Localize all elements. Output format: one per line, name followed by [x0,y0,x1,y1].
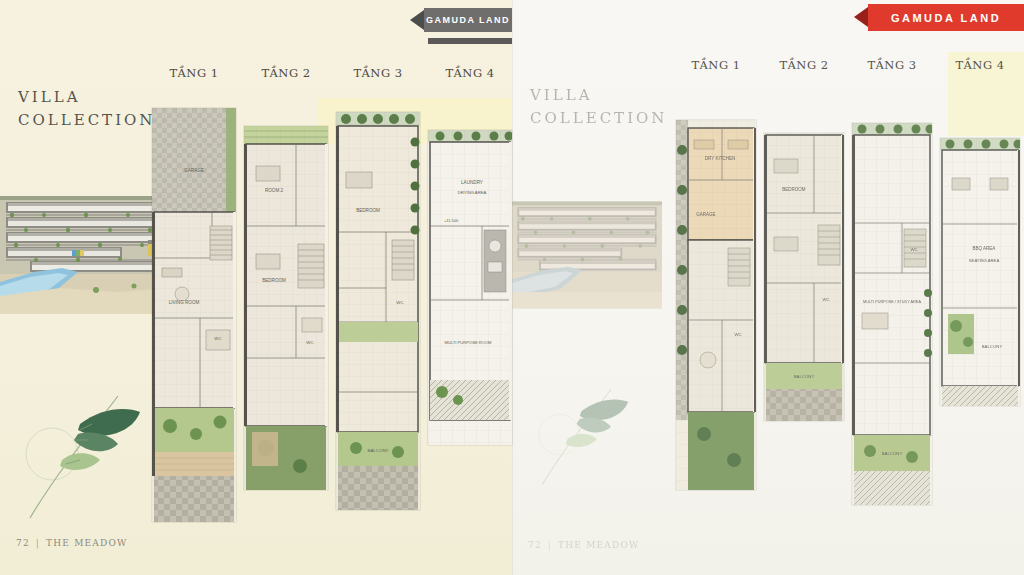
room-label: BEDROOM [262,278,286,283]
floor-plan-right-tang1: DRY KITCHEN GARAGE WC [676,120,756,490]
floor-label-tang3: TẦNG 3 [852,58,932,72]
brochure-page-right: GAMUDA LAND VILLA COLLECTION TẦNG 1 TẦNG… [512,0,1024,575]
floor-label-tang4: TẦNG 4 [940,58,1020,72]
title-line-2: COLLECTION [530,107,667,130]
room-label: BBQ AREA [973,246,996,251]
gamuda-land-ribbon: GAMUDA LAND [424,8,512,32]
floor-plan-left-tang2: ROOM 2 BEDROOM WC [244,126,328,490]
leaf-illustration [536,382,636,492]
page-footer: 72 | THE MEADOW [528,540,640,550]
title-line-2: COLLECTION [18,109,155,132]
ribbon-fold [410,10,424,30]
room-label: ROOM 2 [265,188,284,193]
page-title: VILLA COLLECTION [18,86,155,133]
floor-label-tang1: TẦNG 1 [152,66,236,80]
title-line-1: VILLA [18,86,155,109]
footer-page-number: 72 [16,538,30,548]
footer-project-name: THE MEADOW [558,540,639,550]
room-label: WC [306,340,313,345]
room-label: LAUNDRY [461,180,483,185]
room-label: GARAGE [696,212,715,217]
floor-label-tang4: TẦNG 4 [428,66,512,80]
page-title: VILLA COLLECTION [530,84,667,131]
level-mark: +11.500 [444,218,459,223]
ribbon-fold [854,7,868,27]
ribbon-underbar [428,38,512,44]
aerial-masterplan-image [512,196,662,314]
floor-plan-right-tang4: BBQ AREA SEATING AREA BALCONY [940,138,1020,406]
floor-plan-left-tang4: LAUNDRY DRYING AREA +11.500 MULTI PURPOS… [428,130,512,445]
room-label: WC [910,247,917,252]
floor-label-tang1: TẦNG 1 [676,58,756,72]
room-label: BALCONY [794,374,815,379]
room-label: BEDROOM [782,187,806,192]
floor-plan-left-tang3: BEDROOM WC BALCONY [336,112,420,510]
room-label: DRYING AREA [458,190,487,195]
title-line-1: VILLA [530,84,667,107]
aerial-masterplan-image [0,196,166,314]
footer-separator: | [548,540,552,550]
room-label: BALCONY [368,448,389,453]
brand-logo-text: GAMUDA LAND [891,12,1001,24]
room-label: MULTI PURPOSE ROOM [444,340,492,345]
footer-project-name: THE MEADOW [46,538,127,548]
footer-page-number: 72 [528,540,542,550]
room-label: WC [396,300,403,305]
brochure-page-left: GAMUDA LAND VILLA COLLECTION TẦNG 1 TẦNG… [0,0,512,575]
page-footer: 72 | THE MEADOW [16,538,128,548]
footer-separator: | [36,538,40,548]
leaf-illustration [22,390,150,524]
floor-label-tang2: TẦNG 2 [244,66,328,80]
floor-plan-left-tang1: GARAGE LIVING ROOM WC [152,108,236,522]
floor-label-tang3: TẦNG 3 [336,66,420,80]
brand-logo-text: GAMUDA LAND [426,15,510,25]
room-label: BEDROOM [356,208,380,213]
brochure-spread: GAMUDA LAND VILLA COLLECTION TẦNG 1 TẦNG… [0,0,1024,575]
room-label: MULTI PURPOSE / STUDY AREA [863,300,921,304]
floor-plan-right-tang3: MULTI PURPOSE / STUDY AREA WC BALCONY [852,123,932,505]
room-label: WC [822,297,829,302]
room-label: DRY KITCHEN [705,156,735,161]
room-label: BALCONY [882,451,903,456]
room-label: SEATING AREA [969,258,1000,263]
room-label: WC [734,332,741,337]
gamuda-land-ribbon: GAMUDA LAND [868,4,1024,31]
room-label: GARAGE [184,168,204,173]
room-label: LIVING ROOM [169,300,200,305]
floor-label-tang2: TẦNG 2 [764,58,844,72]
floor-plan-right-tang2: BEDROOM WC BALCONY [764,133,844,421]
room-label: WC [214,336,221,341]
room-label: BALCONY [982,344,1003,349]
